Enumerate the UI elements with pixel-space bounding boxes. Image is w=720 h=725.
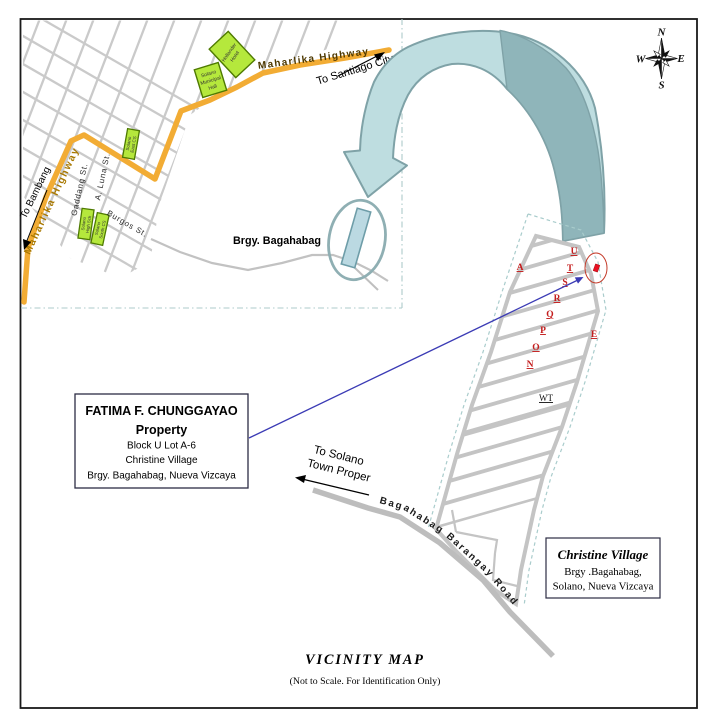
svg-text:Solano, Nueva Vizcaya: Solano, Nueva Vizcaya	[553, 581, 654, 593]
svg-text:(Not to Scale. For Identificat: (Not to Scale. For Identification Only)	[290, 676, 441, 687]
svg-text:T: T	[567, 264, 574, 274]
svg-text:O: O	[532, 343, 539, 353]
svg-text:P: P	[540, 326, 546, 336]
svg-text:W: W	[636, 54, 647, 66]
svg-text:N: N	[527, 360, 534, 370]
svg-text:Block U Lot A-6: Block U Lot A-6	[127, 441, 196, 452]
svg-text:A: A	[517, 263, 524, 273]
svg-text:Q: Q	[546, 310, 553, 320]
svg-text:Christine Village: Christine Village	[125, 455, 198, 466]
svg-text:Christine Village: Christine Village	[558, 547, 649, 562]
svg-text:E: E	[591, 330, 597, 340]
svg-text:Brgy. Bagahabag, Nueva Vizcaya: Brgy. Bagahabag, Nueva Vizcaya	[87, 471, 236, 482]
svg-text:R: R	[554, 294, 561, 304]
svg-text:N: N	[657, 27, 667, 39]
svg-text:E: E	[676, 53, 684, 65]
svg-text:WT: WT	[539, 393, 553, 403]
svg-text:VICINITY MAP: VICINITY MAP	[305, 652, 425, 668]
svg-text:Brgy. Bagahabag: Brgy. Bagahabag	[233, 235, 321, 247]
svg-text:FATIMA F. CHUNGGAYAO: FATIMA F. CHUNGGAYAO	[85, 404, 238, 418]
svg-text:Brgy .Bagahabag,: Brgy .Bagahabag,	[564, 566, 642, 578]
svg-text:Property: Property	[136, 423, 187, 437]
svg-text:S: S	[658, 80, 664, 92]
svg-text:U: U	[571, 247, 578, 257]
